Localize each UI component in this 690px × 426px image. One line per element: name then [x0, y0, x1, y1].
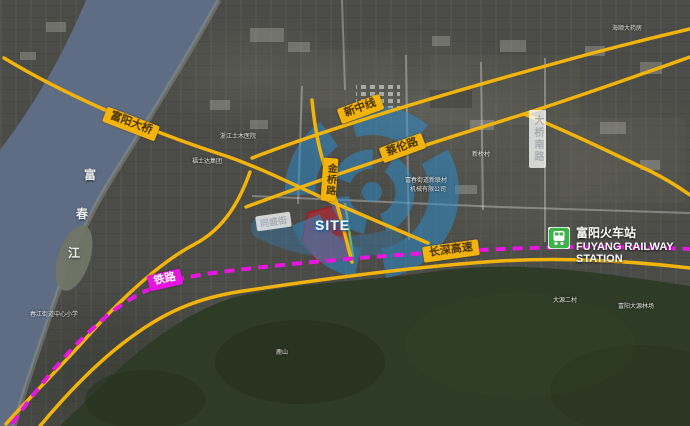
river-name-char: 富	[84, 166, 96, 183]
river-name-char: 春	[76, 205, 88, 222]
site-marker-label: SITE	[315, 217, 350, 233]
minor-place-label: 福士达集团	[192, 159, 222, 165]
minor-place-label: 鹿山	[276, 350, 288, 356]
daqiao-south-road-label: 大桥南路	[529, 110, 546, 168]
minor-place-label: 浙江土木医院	[220, 134, 256, 140]
station-name-cn: 富阳火车站	[576, 227, 674, 241]
station-name-en1: FUYANG RAILWAY	[576, 241, 674, 254]
satellite-site-map: 富 春 江 富阳大桥 新中线 蔡伦路 金桥路 长深高速 铁路 大桥南路 同盛街 …	[0, 0, 690, 426]
minor-place-label: 大源二村	[553, 298, 577, 304]
river-name-char: 江	[68, 244, 80, 261]
minor-place-label: 富春街道新联村	[405, 178, 447, 184]
jinqiao-road-label: 金桥路	[321, 158, 338, 202]
train-icon	[548, 227, 570, 254]
railway-station-callout: 富阳火车站 FUYANG RAILWAY STATION	[548, 227, 674, 266]
minor-place-label: 机械有限公司	[410, 187, 446, 193]
minor-place-label: 春江街道中心小学	[30, 312, 78, 318]
map-overlay-graphics	[0, 0, 690, 426]
minor-place-label: 海顺大药房	[612, 26, 642, 32]
minor-place-label: 富阳大源林场	[618, 304, 654, 310]
station-name-en2: STATION	[576, 253, 674, 266]
minor-place-label: 新桥村	[472, 152, 490, 158]
